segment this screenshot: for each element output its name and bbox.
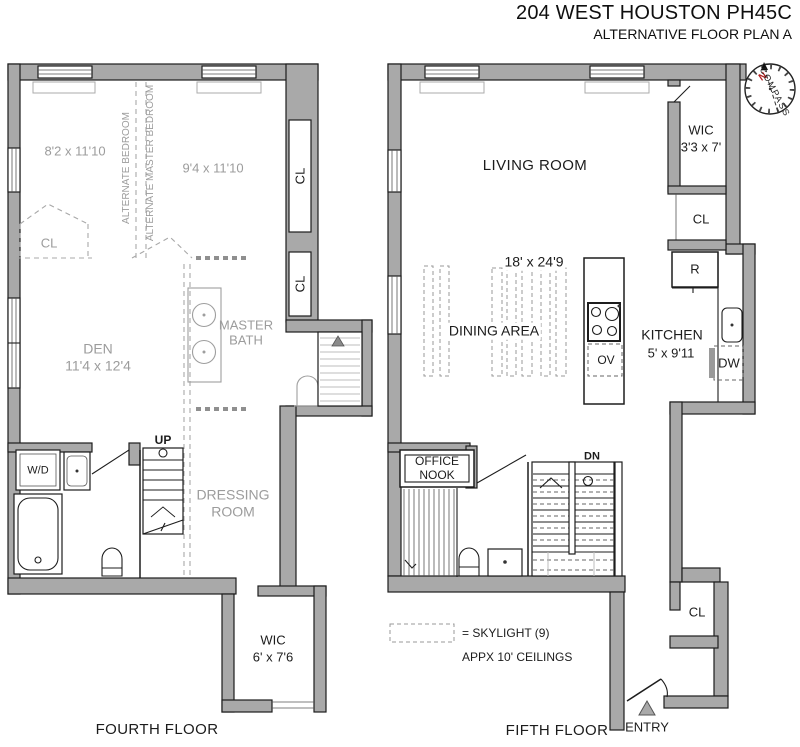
bump-stair bbox=[318, 332, 362, 406]
room-label-living-room: LIVING ROOM bbox=[483, 157, 587, 175]
plan-subtitle: ALTERNATIVE FLOOR PLAN A bbox=[516, 26, 792, 42]
room-label-alt-master-bedroom: ALTERNATE MASTER BEDROOM bbox=[145, 85, 157, 241]
room-label-wic-5f: WIC bbox=[688, 122, 713, 137]
room-label-alt-bedroom: ALTERNATE BEDROOM bbox=[121, 112, 133, 224]
window bbox=[8, 148, 20, 192]
room-label-dressing-room: DRESSING ROOM bbox=[185, 486, 281, 519]
entry-and-closet bbox=[627, 679, 667, 715]
stairs-up-label: UP bbox=[155, 433, 172, 447]
legend-skylight: = SKYLIGHT (9) bbox=[462, 626, 549, 640]
fifth-floor-stairs-down bbox=[528, 462, 622, 576]
header: 204 WEST HOUSTON PH45C ALTERNATIVE FLOOR… bbox=[516, 2, 792, 42]
entry-triangle bbox=[639, 701, 655, 715]
room-label-dining-area: DINING AREA bbox=[447, 323, 541, 340]
dim-alt-master: 9'4 x 11'10 bbox=[182, 160, 243, 175]
door-swing bbox=[92, 450, 129, 474]
dim-wic-5f: 3'3 x 7' bbox=[681, 139, 721, 154]
floor-label-fifth: FIFTH FLOOR bbox=[506, 722, 609, 740]
window bbox=[590, 66, 644, 78]
closet-label-dashed: CL bbox=[41, 235, 58, 250]
bathtub bbox=[14, 494, 62, 574]
shower-hatch bbox=[404, 489, 454, 576]
plan-title: 204 WEST HOUSTON PH45C bbox=[516, 2, 792, 25]
stairs-down-label: DN bbox=[584, 451, 600, 464]
window bbox=[38, 66, 92, 78]
door-swing bbox=[674, 86, 690, 102]
dishwasher-label: DW bbox=[718, 355, 740, 370]
room-label-den: DEN bbox=[83, 341, 113, 358]
door-swing bbox=[477, 455, 526, 483]
closet-label-lower-5f: CL bbox=[689, 604, 706, 619]
room-label-wic-4f: WIC bbox=[260, 632, 285, 647]
dim-alt-bedroom: 8'2 x 11'10 bbox=[44, 143, 105, 158]
toilet bbox=[459, 548, 479, 576]
window bbox=[202, 66, 256, 78]
oven-label: OV bbox=[597, 353, 614, 367]
window bbox=[388, 150, 401, 192]
room-label-office-nook: OFFICE NOOK bbox=[409, 454, 465, 482]
dim-overall-5f: 18' x 24'9 bbox=[502, 254, 565, 271]
skylight-legend-swatch bbox=[390, 624, 454, 642]
toilet bbox=[297, 376, 318, 406]
closet-label-upper-5f: CL bbox=[693, 211, 710, 226]
dim-wic-4f: 6' x 7'6 bbox=[253, 649, 293, 664]
window bbox=[425, 66, 479, 78]
closet-label-right-upper: CL bbox=[292, 168, 307, 185]
entry-door bbox=[627, 679, 661, 701]
legend-ceilings: APPX 10' CEILINGS bbox=[462, 650, 572, 664]
washer-dryer-label: W/D bbox=[27, 465, 48, 478]
room-label-kitchen: KITCHEN bbox=[641, 327, 702, 344]
toilet bbox=[102, 548, 122, 576]
entry-label: ENTRY bbox=[625, 719, 669, 734]
refrigerator-label: R bbox=[690, 261, 699, 276]
floor-label-fourth: FOURTH FLOOR bbox=[96, 721, 219, 739]
closet-label-right-lower: CL bbox=[292, 276, 307, 293]
room-label-master-bath: MASTER BATH bbox=[213, 318, 279, 349]
fourth-floor-stairs-up bbox=[143, 448, 183, 534]
window bbox=[388, 276, 401, 334]
dim-kitchen: 5' x 9'11 bbox=[648, 345, 695, 360]
floor-plan-page: 204 WEST HOUSTON PH45C ALTERNATIVE FLOOR… bbox=[0, 0, 800, 747]
dim-den: 11'4 x 12'4 bbox=[65, 358, 131, 375]
